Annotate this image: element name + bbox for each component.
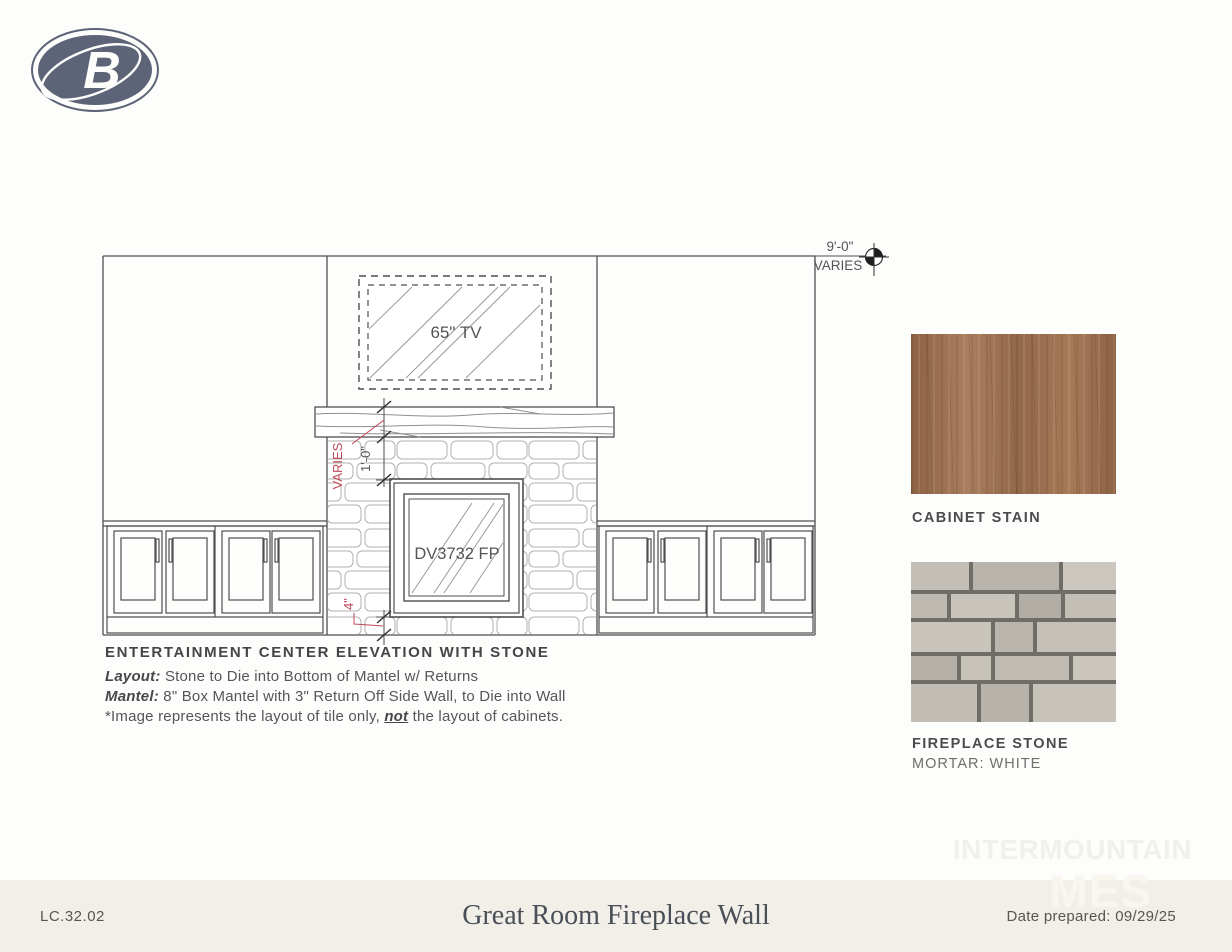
cabinets-left — [107, 526, 323, 633]
logo-letter: B — [83, 42, 121, 100]
cabinet-stain-label: CABINET STAIN — [912, 510, 1041, 526]
notes-layout-text: Stone to Die into Bottom of Mantel w/ Re… — [161, 668, 479, 685]
notes-title: ENTERTAINMENT CENTER ELEVATION WITH STON… — [105, 644, 665, 661]
notes-layout-label: Layout: — [105, 668, 161, 685]
dimension-overall-height: 9'-0" VARIES — [814, 239, 889, 276]
notes-mantel-line: Mantel: 8" Box Mantel with 3" Return Off… — [105, 687, 665, 707]
notes-footnote-post: the layout of cabinets. — [408, 708, 563, 725]
sheet-code: LC.32.02 — [40, 908, 105, 925]
fireplace: DV3732 FP — [390, 479, 523, 617]
spec-sheet-page: B — [0, 0, 1232, 952]
notes-footnote: *Image represents the layout of tile onl… — [105, 707, 665, 727]
notes-mantel-label: Mantel: — [105, 688, 159, 705]
tv: 65" TV — [359, 276, 551, 389]
footer-band: LC.32.02 Great Room Fireplace Wall Date … — [0, 880, 1232, 952]
notes-block: ENTERTAINMENT CENTER ELEVATION WITH STON… — [105, 644, 665, 727]
watermark-mes: MES — [1049, 864, 1152, 918]
notes-layout-line: Layout: Stone to Die into Bottom of Mant… — [105, 667, 665, 687]
brand-logo: B — [28, 24, 162, 116]
fireplace-label: DV3732 FP — [414, 545, 499, 563]
cabinet-stain-swatch — [911, 334, 1116, 494]
fireplace-stone-label: FIREPLACE STONE — [912, 736, 1069, 752]
dim-hearth-value: 4" — [341, 598, 356, 610]
cabinet-handles-left — [156, 539, 278, 562]
mantel — [315, 407, 614, 437]
notes-footnote-pre: *Image represents the layout of tile onl… — [105, 708, 384, 725]
notes-mantel-text: 8" Box Mantel with 3" Return Off Side Wa… — [159, 688, 566, 705]
tv-label: 65" TV — [430, 323, 482, 342]
watermark-intermountain: INTERMOUNTAIN — [953, 834, 1192, 866]
cabinets-right — [599, 526, 813, 633]
elevation-drawing: 65" TV DV3732 FP — [90, 228, 900, 652]
dim-mantel-to-fireplace: 1'-0" — [358, 446, 373, 472]
dim-mantel-varies: VARIES — [330, 442, 345, 489]
mortar-label: MORTAR: WHITE — [912, 756, 1041, 772]
dim-overall-value: 9'-0" — [827, 239, 854, 254]
fireplace-stone-swatch — [911, 562, 1116, 722]
notes-footnote-emph: not — [384, 708, 408, 725]
cabinet-handles-right — [648, 539, 770, 562]
datum-target-icon — [859, 243, 889, 276]
dim-overall-varies: VARIES — [814, 258, 863, 273]
